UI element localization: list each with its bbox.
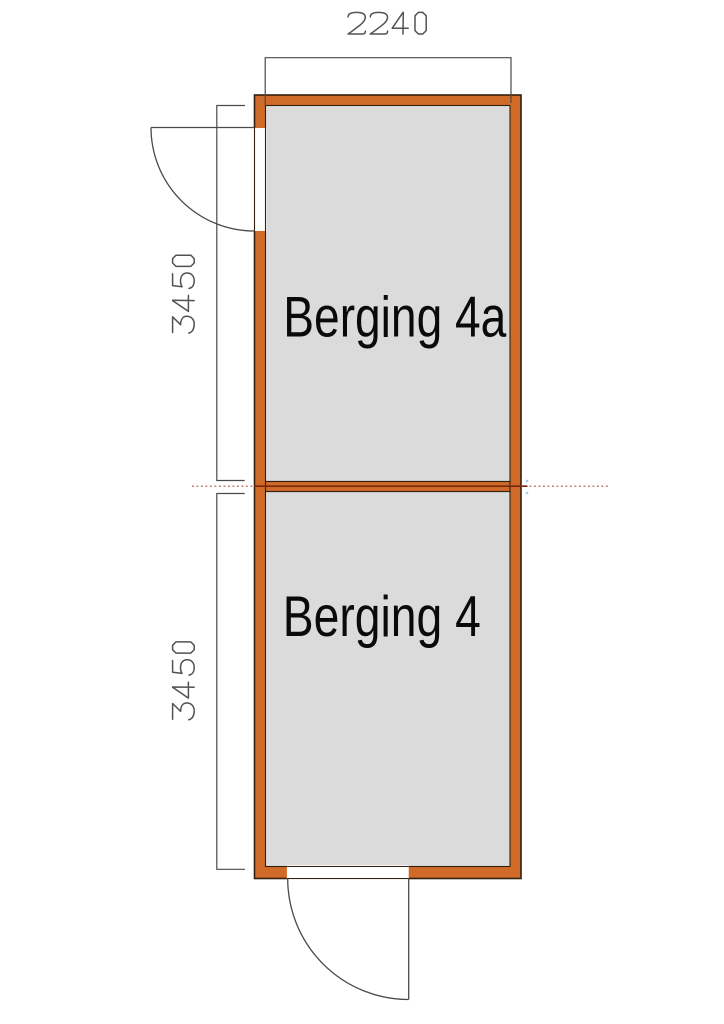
svg-text:Berging 4a: Berging 4a [283, 285, 506, 349]
svg-text:Berging 4: Berging 4 [283, 585, 481, 649]
